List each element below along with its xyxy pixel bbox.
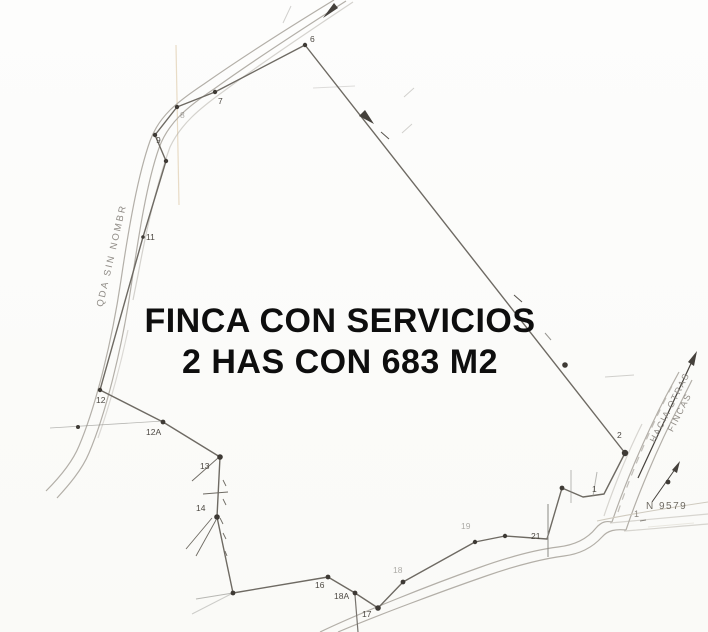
vertex-dot	[473, 540, 477, 544]
smudge-5	[605, 375, 634, 377]
smudge-4	[283, 6, 291, 23]
vertex-dot	[560, 486, 565, 491]
ne-arrowhead	[688, 351, 697, 366]
road-bottom-line-lower	[338, 530, 626, 632]
vertex-label-18A: 18A	[334, 591, 349, 601]
vertex-dot	[98, 388, 102, 392]
road-left-line-outer	[46, 0, 334, 491]
vertex-label-13: 13	[200, 461, 209, 471]
vertex-dot	[353, 591, 358, 596]
area-title-line2: 2 HAS CON 683 M2	[128, 342, 552, 383]
vertex-dot	[326, 575, 331, 580]
tick-a	[223, 480, 226, 486]
vertex-dot	[622, 450, 628, 456]
vertex-dot	[141, 235, 145, 239]
vertex-dot	[503, 534, 507, 538]
tick-d	[223, 533, 226, 539]
vertex-label-7: 7	[218, 96, 223, 106]
vertex-label-12: 12	[96, 395, 105, 405]
grid-line-label: N 9579	[646, 501, 687, 512]
vertex-label-16: 16	[315, 580, 324, 590]
grid-line-tick-label: 1	[634, 509, 639, 519]
fold-line-artifact	[176, 45, 179, 205]
smudge-2	[404, 88, 414, 97]
vertex-dot	[401, 580, 406, 585]
vertex-dot	[175, 105, 179, 109]
vertex-label-18: 18	[393, 565, 402, 575]
area-title-line1: FINCA CON SERVICIOS	[128, 301, 552, 342]
vertex-dot	[562, 362, 568, 368]
vertex-label-19: 19	[461, 521, 470, 531]
lot-line-18a-south	[355, 595, 358, 632]
vertex-label-21: 21	[531, 531, 540, 541]
road-left-creek	[46, 0, 353, 498]
vertex-dot	[666, 480, 671, 485]
vertex-label-14: 14	[196, 503, 205, 513]
vertex-label-1: 1	[592, 484, 597, 494]
tick-cross-13-14	[203, 492, 228, 494]
smudge-3	[402, 124, 412, 133]
tick-b	[223, 499, 226, 505]
vertex-dot	[217, 454, 223, 460]
vertex-dot	[375, 605, 381, 611]
vertex-label-17: 17	[362, 609, 371, 619]
area-title: FINCA CON SERVICIOS 2 HAS CON 683 M2	[128, 301, 552, 383]
vertex-label-6: 6	[310, 34, 315, 44]
vertex-dot	[231, 591, 236, 596]
vertex-label-9: 9	[156, 135, 161, 145]
vertex-label-2: 2	[617, 430, 622, 440]
arrows	[323, 3, 374, 124]
vertex-label-12A: 12A	[146, 427, 161, 437]
corner-extension-lines	[192, 593, 233, 614]
vertex-dot	[161, 420, 166, 425]
vertex-dot	[164, 159, 168, 163]
grid-line-under	[648, 523, 694, 527]
survey-plat-page: FINCA CON SERVICIOS 2 HAS CON 683 M2 QDA…	[0, 0, 708, 632]
vertex-dot	[303, 43, 307, 47]
road-left-line-inner	[133, 2, 353, 300]
vertex-dot	[76, 425, 80, 429]
diagonal-arrowhead	[359, 110, 374, 124]
vertex-label-8: 8	[180, 110, 185, 120]
tick-c	[220, 518, 223, 524]
vertex-dot	[213, 90, 217, 94]
smudge-1	[313, 86, 355, 88]
diagonal-tick-3	[381, 132, 389, 139]
vertex-dot	[214, 514, 220, 520]
road-left-line-middle	[57, 1, 346, 498]
vertex-label-11: 11	[146, 232, 155, 242]
